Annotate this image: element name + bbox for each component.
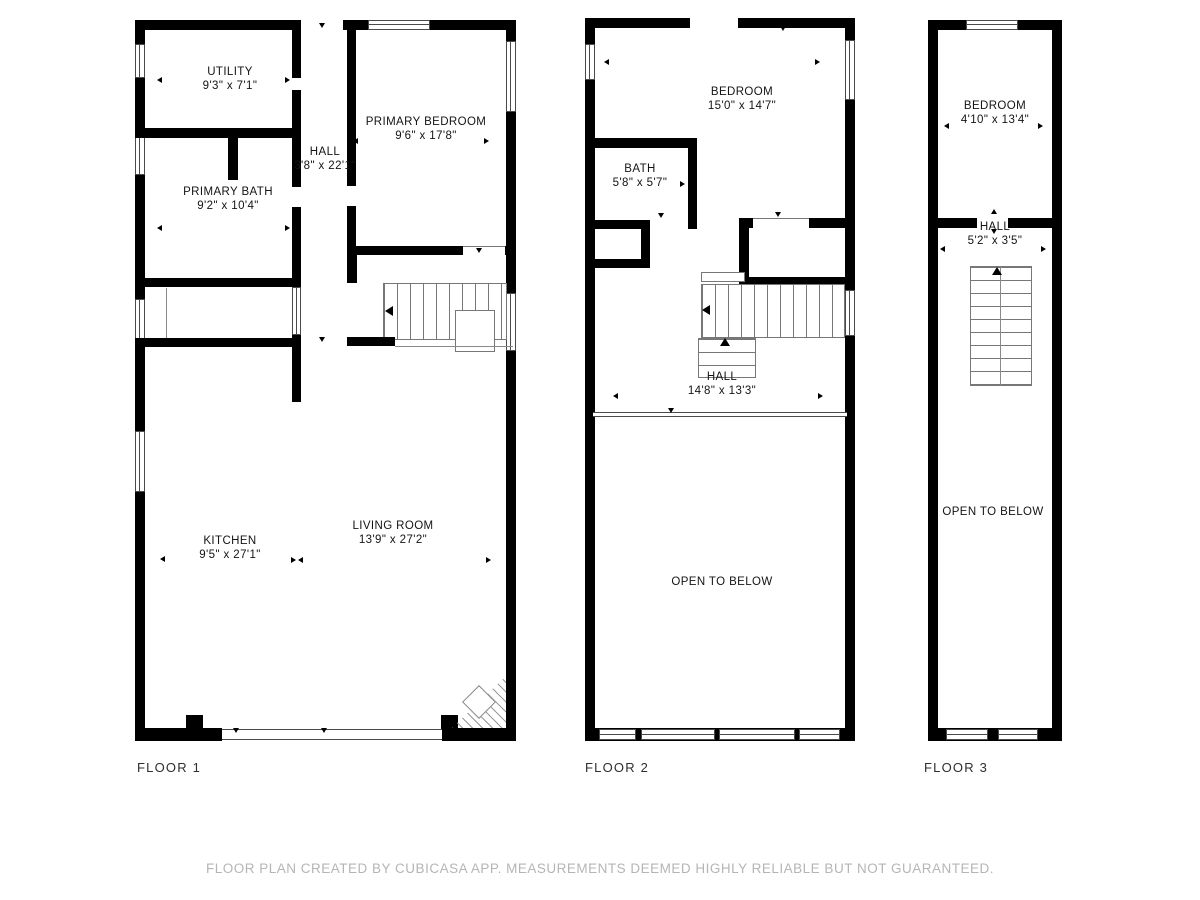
floor-plan-canvas: UTILITY 9'3" x 7'1" PRIMARY BATH 9'2" x …	[0, 0, 1200, 900]
wall	[1052, 20, 1062, 741]
window	[998, 729, 1038, 740]
stair-center-line	[1000, 267, 1001, 385]
dimension-arrow-icon	[944, 123, 949, 129]
window	[946, 729, 988, 740]
room-label-bedroom: BEDROOM 4'10" x 13'4"	[961, 99, 1029, 127]
floor-3-plan: BEDROOM 4'10" x 13'4" HALL 5'2" x 3'5" O…	[0, 0, 1200, 900]
footer-disclaimer: FLOOR PLAN CREATED BY CUBICASA APP. MEAS…	[0, 861, 1200, 876]
dimension-arrow-icon	[940, 246, 945, 252]
room-name: BEDROOM	[961, 99, 1029, 113]
room-label-hall: HALL 5'2" x 3'5"	[968, 220, 1023, 248]
room-dimensions: 5'2" x 3'5"	[968, 234, 1023, 248]
floor-3-label: FLOOR 3	[924, 760, 988, 775]
wall	[928, 20, 938, 741]
room-name: OPEN TO BELOW	[942, 505, 1043, 519]
room-label-open-to-below: OPEN TO BELOW	[942, 505, 1043, 519]
dimension-arrow-icon	[1041, 246, 1046, 252]
room-name: HALL	[968, 220, 1023, 234]
staircase	[970, 266, 1032, 386]
window	[966, 20, 1018, 30]
dimension-arrow-icon	[991, 209, 997, 214]
dimension-arrow-icon	[1038, 123, 1043, 129]
stair-direction-arrow-icon	[992, 267, 1002, 275]
room-dimensions: 4'10" x 13'4"	[961, 113, 1029, 127]
